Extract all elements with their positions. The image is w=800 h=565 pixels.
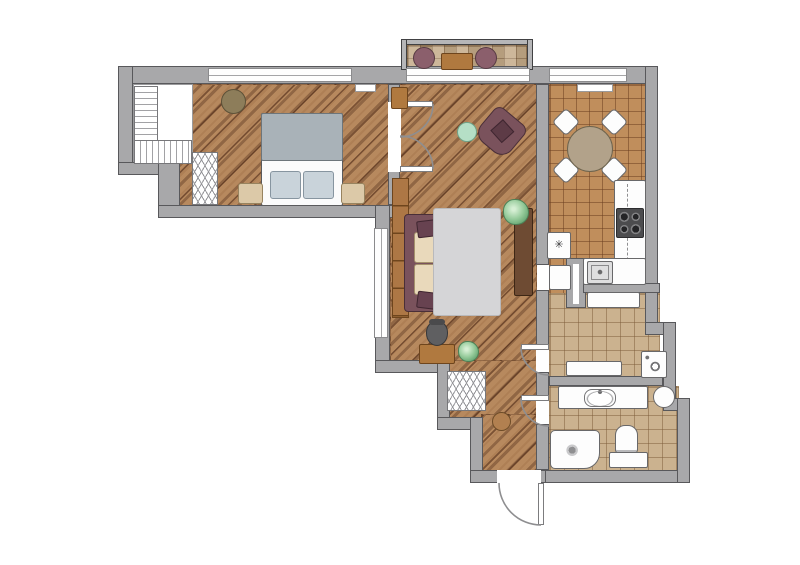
bedroom-window [208,68,352,82]
balcony-wall-left [401,39,407,70]
balcony-table [441,53,473,70]
plant-living-north [503,199,529,225]
dining-table [567,126,613,172]
bedroom-door-gap [388,102,401,172]
floor-plan: ✳ [0,0,800,565]
living-rug [433,208,501,316]
living-wall-cabinet [391,87,408,109]
bedroom-door-leaf-2 [400,166,433,172]
balcony-wall-top [401,39,533,45]
bedroom-closet-rail-b [134,140,192,164]
entry-exterior-door-swing [499,483,541,525]
hallway-bench [566,361,622,376]
bathroom-cabinet [609,452,648,468]
kitchen-window [549,68,627,82]
entry-bath-door-leaf [521,395,549,401]
wall-right-lower [677,398,690,483]
wall-bath-west [536,424,549,470]
wall-hall-west-a [536,290,549,345]
hall-niche [549,265,571,290]
coffee-table [457,122,477,142]
toilet [615,425,638,453]
kitchen-sliding-door-slot [573,264,579,304]
wall-entry-step-v2 [470,417,483,474]
plant-living-south [458,341,479,362]
entry-hall-door-leaf [521,344,549,350]
entry-closet [447,371,486,411]
bedroom-pouf [221,89,246,114]
nightstand-right [341,183,365,204]
office-chair [426,321,448,346]
desk [419,344,455,364]
hallway-cabinet [587,292,640,308]
fridge: ✳ [547,232,571,259]
kitchen-window-sill [577,84,613,92]
water-heater [653,386,675,408]
wall-bedroom-south [158,205,395,218]
entry-exterior-door-gap [497,470,541,483]
kitchen-sink [587,261,613,284]
balcony-wall-right [527,39,533,70]
stove [616,208,644,238]
washing-machine [641,351,667,378]
entry-exterior-door-leaf [538,483,544,525]
living-west-window [374,228,388,338]
entry-pouf [492,412,511,431]
wall-left-upper [118,66,133,175]
bathroom-basin [584,389,616,407]
bed-pillow-right [303,171,334,199]
bedroom-wardrobe [192,152,218,205]
balcony-chair-left [413,47,435,69]
wall-hall-west-b [536,372,549,396]
bed-blanket [261,113,343,161]
balcony-door-window [406,68,530,82]
bed-pillow-left [270,171,301,199]
wall-bath-south [545,470,690,483]
shower-tray [550,430,600,469]
nightstand-left [238,183,263,204]
bedroom-window-sill [355,84,376,92]
balcony-chair-right [475,47,497,69]
